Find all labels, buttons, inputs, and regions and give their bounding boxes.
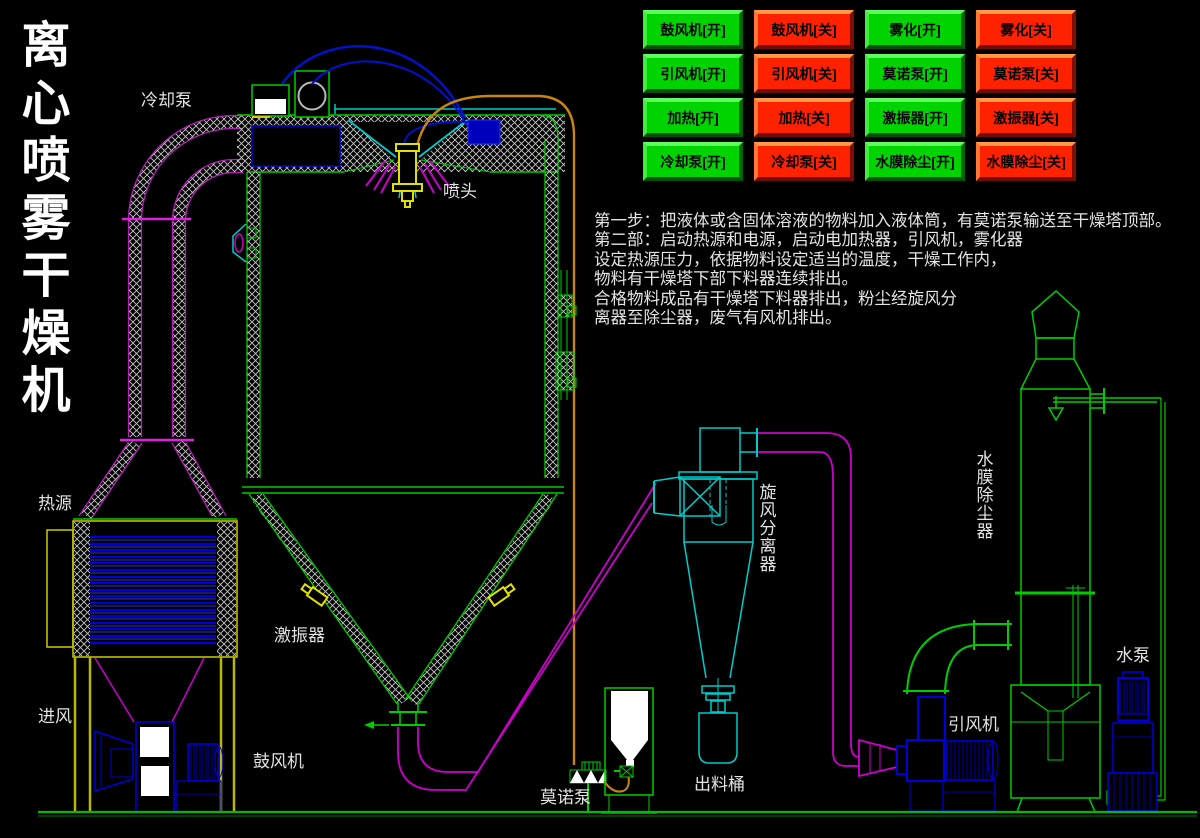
label-draft-fan: 引风机 (948, 715, 999, 734)
fan-outlet-elbow (903, 620, 1012, 694)
label-heat-source: 热源 (38, 494, 72, 513)
label-cooling-pump: 冷却泵 (141, 91, 192, 110)
diagram-labels: 冷却泵 喷头 热源 进风 鼓风机 激振器 莫诺泵 出料桶 旋风分离器 引风机 水… (38, 91, 1150, 807)
spray-nozzle-icon (1049, 408, 1063, 420)
label-discharge-barrel: 出料桶 (694, 775, 745, 794)
spray-dryer-hmi-screen: 离心喷雾干燥机 鼓风机[开] 鼓风机[关] 雾化[开] 雾化[关] 引风机[开]… (0, 0, 1200, 838)
label-mono-pump: 莫诺泵 (540, 788, 591, 807)
pipe-cyclone-to-fan (758, 433, 907, 776)
discharge-arrow-icon (364, 721, 374, 729)
cyclone-separator (654, 428, 758, 763)
ground-line (38, 812, 1197, 816)
label-blower: 鼓风机 (253, 752, 304, 771)
motor-circle-icon (299, 83, 326, 110)
liquid-tank (601, 688, 657, 813)
label-water-pump: 水泵 (1116, 646, 1150, 665)
label-cyclone: 旋风分离器 (757, 483, 777, 573)
blower-unit (95, 722, 223, 812)
process-diagram: 冷却泵 喷头 热源 进风 鼓风机 激振器 莫诺泵 出料桶 旋风分离器 引风机 水… (0, 0, 1200, 838)
label-spray-head: 喷头 (443, 182, 477, 201)
water-pump-unit (1108, 672, 1157, 811)
hot-air-pipe (79, 116, 243, 517)
discharge-barrel (699, 678, 737, 763)
label-air-inlet: 进风 (38, 707, 72, 726)
label-scrubber: 水膜除尘器 (974, 450, 994, 540)
label-vibrator: 激振器 (274, 626, 325, 645)
